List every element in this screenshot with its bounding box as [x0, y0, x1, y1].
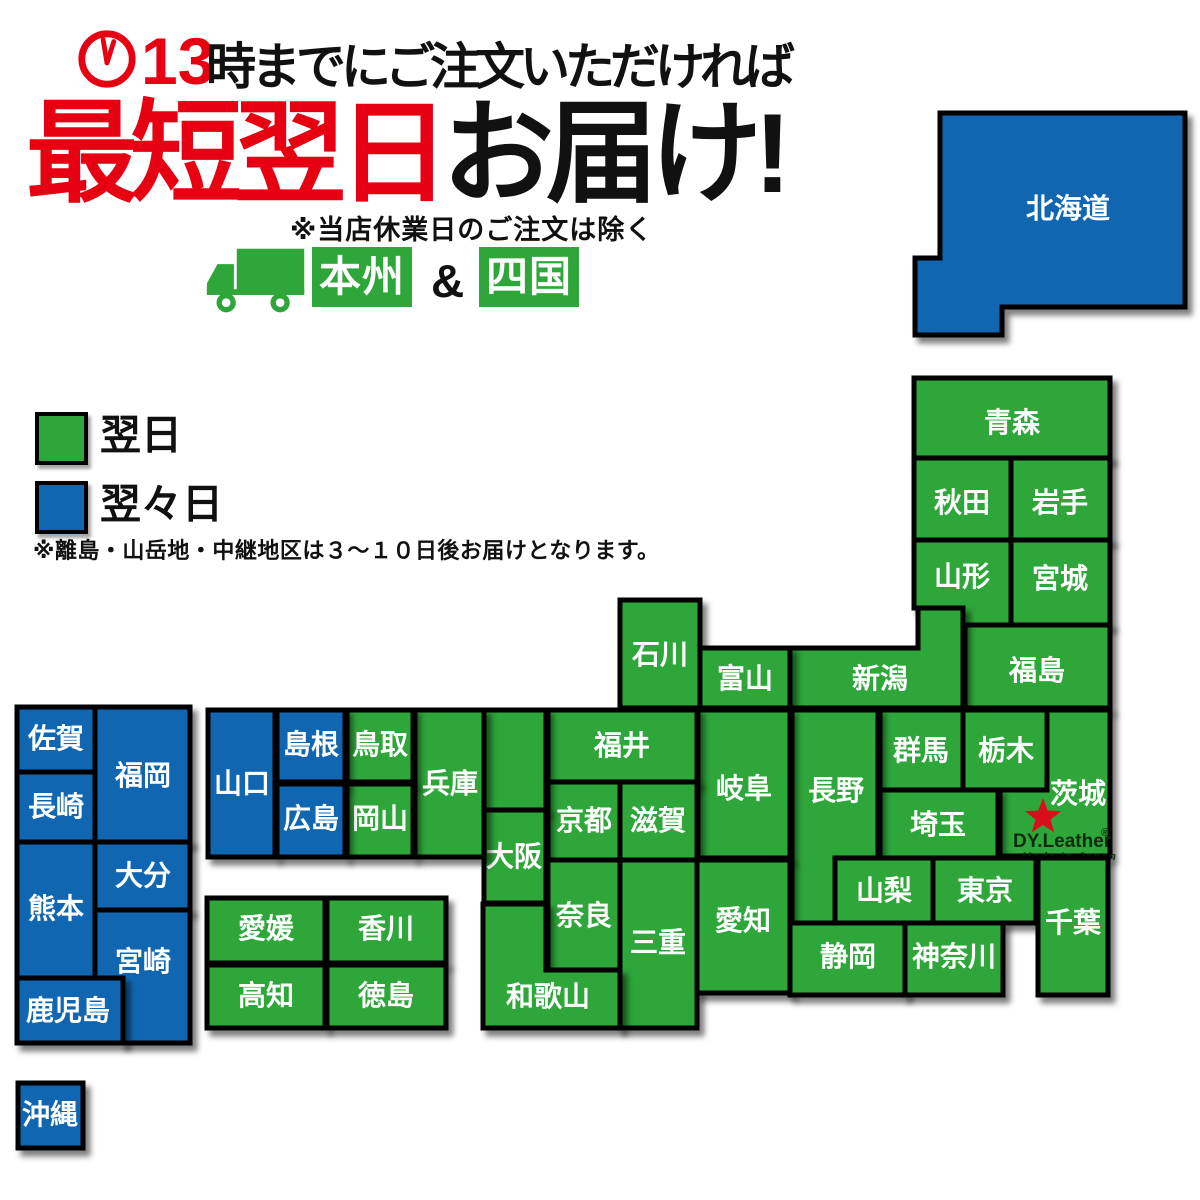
svg-text:北海道: 北海道 — [1026, 192, 1110, 224]
prefecture-saga: 佐賀 — [17, 707, 95, 772]
svg-text:福岡: 福岡 — [114, 760, 171, 791]
prefecture-okinawa: 沖縄 — [18, 1083, 83, 1148]
prefecture-niigata: 新潟 — [790, 608, 963, 708]
svg-text:宮城: 宮城 — [1032, 562, 1088, 594]
prefecture-kanagawa: 神奈川 — [905, 923, 1003, 995]
prefecture-ehime: 愛媛 — [207, 898, 325, 963]
svg-text:千葉: 千葉 — [1045, 907, 1102, 938]
prefecture-miyagi: 宮城 — [1011, 540, 1110, 625]
svg-text:愛媛: 愛媛 — [238, 913, 295, 944]
prefecture-shiga: 滋賀 — [620, 782, 697, 860]
svg-text:長崎: 長崎 — [28, 791, 84, 822]
prefecture-shizuoka: 静岡 — [790, 923, 905, 995]
prefecture-tokushima: 徳島 — [327, 965, 446, 1028]
svg-text:山梨: 山梨 — [856, 875, 912, 906]
prefecture-ishikawa: 石川 — [620, 600, 700, 708]
svg-text:山形: 山形 — [934, 561, 990, 592]
svg-text:愛知: 愛知 — [715, 904, 771, 936]
svg-text:鹿児島: 鹿児島 — [26, 994, 110, 1026]
svg-text:山口: 山口 — [214, 768, 270, 799]
svg-text:静岡: 静岡 — [820, 941, 876, 972]
prefecture-kyoto-north-block — [484, 710, 546, 810]
prefecture-yamanashi: 山梨 — [835, 858, 933, 923]
svg-text:茨城: 茨城 — [1050, 778, 1106, 809]
prefecture-kochi: 高知 — [207, 965, 325, 1028]
svg-text:奈良: 奈良 — [555, 899, 612, 931]
svg-text:滋賀: 滋賀 — [630, 805, 686, 836]
svg-text:青森: 青森 — [984, 407, 1041, 438]
prefecture-okayama: 岡山 — [347, 784, 413, 857]
prefecture-osaka: 大阪 — [484, 810, 546, 903]
prefecture-gunma: 群馬 — [880, 710, 963, 790]
prefecture-aichi: 愛知 — [697, 860, 790, 993]
prefecture-gifu: 岐阜 — [698, 710, 790, 858]
svg-text:鳥取: 鳥取 — [352, 728, 408, 760]
prefecture-kyoto: 京都 — [548, 782, 620, 860]
prefecture-kagawa: 香川 — [327, 898, 446, 963]
prefecture-hiroshima: 広島 — [277, 784, 345, 857]
svg-text:島根: 島根 — [283, 729, 339, 760]
prefecture-kumamoto: 熊本 — [17, 842, 95, 978]
prefecture-chiba: 千葉 — [1038, 858, 1108, 995]
prefecture-toyama: 富山 — [700, 648, 790, 708]
prefecture-fukui: 福井 — [548, 710, 697, 782]
prefecture-oita: 大分 — [95, 842, 190, 910]
svg-text:広島: 広島 — [283, 803, 339, 834]
svg-text:岐阜: 岐阜 — [716, 773, 772, 804]
svg-text:佐賀: 佐賀 — [27, 723, 84, 754]
prefecture-hokkaido: 北海道 — [915, 113, 1185, 335]
svg-text:宮崎: 宮崎 — [115, 945, 171, 977]
japan-delivery-map: 北海道 青森 秋田 岩手 山形 宮城 福島 新潟 石川 富山 — [0, 0, 1200, 1200]
svg-text:和歌山: 和歌山 — [506, 981, 590, 1012]
svg-text:香川: 香川 — [358, 913, 414, 944]
prefecture-tochigi: 栃木 — [963, 710, 1047, 790]
prefecture-shimane: 島根 — [277, 710, 345, 782]
svg-text:徳島: 徳島 — [357, 980, 414, 1011]
svg-text:東京: 東京 — [957, 874, 1013, 906]
brand-logo: DY.Leather — [1013, 831, 1112, 852]
prefecture-saitama: 埼玉 — [880, 790, 998, 858]
prefecture-akita: 秋田 — [914, 458, 1011, 540]
prefecture-nagasaki: 長崎 — [17, 772, 95, 842]
svg-text:石川: 石川 — [631, 639, 688, 670]
svg-text:神奈川: 神奈川 — [912, 941, 996, 972]
svg-text:大分: 大分 — [115, 860, 171, 891]
prefecture-tottori: 鳥取 — [347, 710, 413, 782]
svg-text:秋田: 秋田 — [934, 487, 990, 518]
svg-text:埼玉: 埼玉 — [910, 809, 966, 840]
svg-text:福井: 福井 — [593, 730, 650, 761]
svg-text:沖縄: 沖縄 — [22, 1099, 78, 1130]
svg-text:京都: 京都 — [556, 804, 612, 836]
svg-text:兵庫: 兵庫 — [422, 768, 478, 799]
svg-text:新潟: 新潟 — [852, 663, 908, 694]
prefecture-hyogo: 兵庫 — [415, 710, 484, 857]
prefecture-mie: 三重 — [620, 860, 697, 1028]
registered-mark: ® — [1101, 827, 1109, 839]
shipping-infographic: 13 時までにご注文いただければ 最短翌日お届け! ※当店休業日のご注文は除く … — [0, 0, 1200, 1200]
prefecture-nara: 奈良 — [548, 860, 620, 970]
prefecture-aomori: 青森 — [914, 378, 1110, 458]
prefecture-kagoshima: 鹿児島 — [17, 978, 123, 1043]
prefecture-fukuoka: 福岡 — [95, 707, 190, 842]
svg-text:高知: 高知 — [238, 979, 294, 1011]
svg-text:福島: 福島 — [1008, 655, 1065, 686]
svg-text:富山: 富山 — [717, 662, 773, 694]
svg-text:群馬: 群馬 — [893, 735, 949, 766]
svg-text:長野: 長野 — [808, 775, 864, 806]
svg-text:三重: 三重 — [630, 927, 686, 958]
prefecture-yamaguchi: 山口 — [208, 710, 275, 857]
svg-text:岩手: 岩手 — [1031, 487, 1088, 518]
svg-text:栃木: 栃木 — [978, 735, 1034, 766]
prefecture-tokyo: 東京 — [933, 858, 1036, 923]
prefecture-iwate: 岩手 — [1011, 458, 1110, 540]
svg-text:大阪: 大阪 — [486, 841, 542, 872]
prefecture-fukushima: 福島 — [965, 625, 1110, 708]
svg-text:熊本: 熊本 — [28, 892, 84, 924]
svg-text:岡山: 岡山 — [352, 803, 408, 834]
